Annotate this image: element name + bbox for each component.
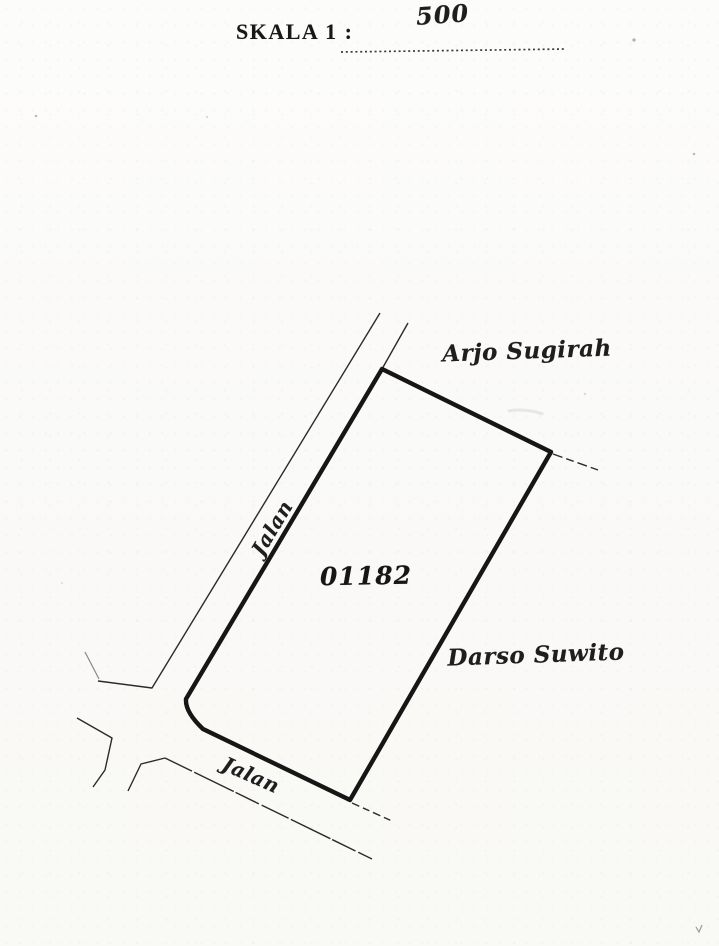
parcel-number-label: 01182 [320,561,412,592]
scale-value-handwritten: 500 [415,0,470,31]
scale-label: SKALA 1 : [236,19,353,45]
boundary-extension-southeast-line [352,803,392,821]
scanned-survey-page: SKALA 1 : 500 01182 Arjo Sugirah Darso S… [0,0,719,946]
road-west-edge-line [98,313,380,688]
road-stub-line [85,652,99,679]
survey-sketch-canvas [0,0,719,946]
intersection-south-corner-line [128,758,165,791]
boundary-extension-northeast-line [553,454,598,470]
intersection-southwest-corner-line [77,718,112,787]
scan-noise-specks [35,38,702,932]
road-east-edge-line [382,323,408,369]
scale-dotted-line [341,49,566,52]
